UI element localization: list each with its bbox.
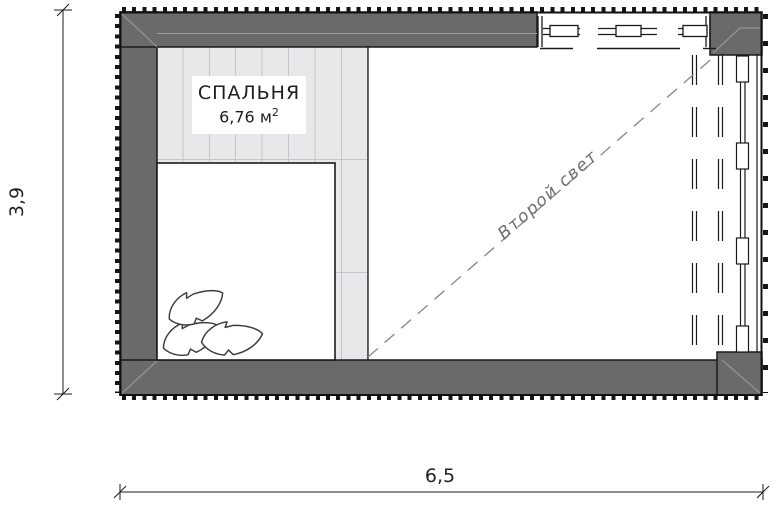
dimension-value-horizontal: 6,5 (410, 465, 470, 487)
room-label: СПАЛЬНЯ 6,76 м2 (192, 76, 306, 134)
wall-bottom (120, 360, 762, 395)
room-area-sup: 2 (272, 106, 279, 119)
plan-linework (0, 0, 773, 508)
void-edge-dashed-lines (693, 55, 723, 352)
window-mullion (737, 143, 749, 169)
window-right (693, 55, 758, 352)
dimension-line-vertical (54, 4, 72, 400)
dimension-value-vertical: 3,9 (6, 172, 28, 232)
window-mullion (616, 26, 641, 37)
room-area: 6,76 м2 (219, 106, 279, 127)
window-mullion (737, 326, 749, 352)
room-name: СПАЛЬНЯ (198, 82, 300, 106)
window-mullion (683, 26, 707, 37)
window-mullion (737, 238, 749, 264)
window-mullion (737, 56, 749, 82)
floor-plan: СПАЛЬНЯ 6,76 м2 Второй свет 6,5 3,9 (0, 0, 773, 508)
window-top (538, 16, 716, 49)
wall-top (120, 12, 537, 47)
window-mullion (550, 26, 578, 37)
wall-left (120, 12, 157, 395)
room-area-value: 6,76 м (219, 108, 272, 127)
